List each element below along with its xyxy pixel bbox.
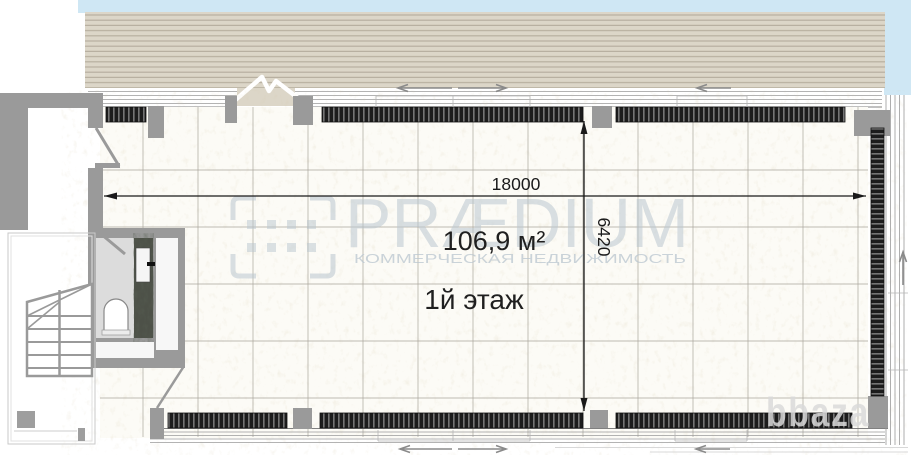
terrace-deck [85, 12, 885, 88]
bbaza-watermark: bbaza [766, 389, 870, 435]
floor-number-label: 1й этаж [424, 284, 524, 315]
dimension-width-label: 18000 [492, 174, 541, 194]
floor-plan-canvas: PRÆDIUM КОММЕРЧЕСКАЯ НЕДВИЖИМОСТЬ [0, 0, 911, 458]
radiators-bottom [168, 413, 852, 428]
main-room-floor [100, 107, 868, 438]
shaft [156, 238, 178, 350]
bathroom-block [88, 228, 185, 368]
dimension-depth-label: 6420 [594, 218, 614, 257]
toilet-icon [104, 299, 128, 333]
room-area-label: 106,9 м² [443, 226, 546, 256]
floor-plan-screenshot: PRÆDIUM КОММЕРЧЕСКАЯ НЕДВИЖИМОСТЬ [0, 0, 911, 458]
wall-stub [78, 428, 85, 441]
door-handle-icon [147, 262, 155, 266]
radiator-right [871, 128, 884, 396]
vestibule [96, 342, 154, 358]
column-block [17, 411, 35, 428]
